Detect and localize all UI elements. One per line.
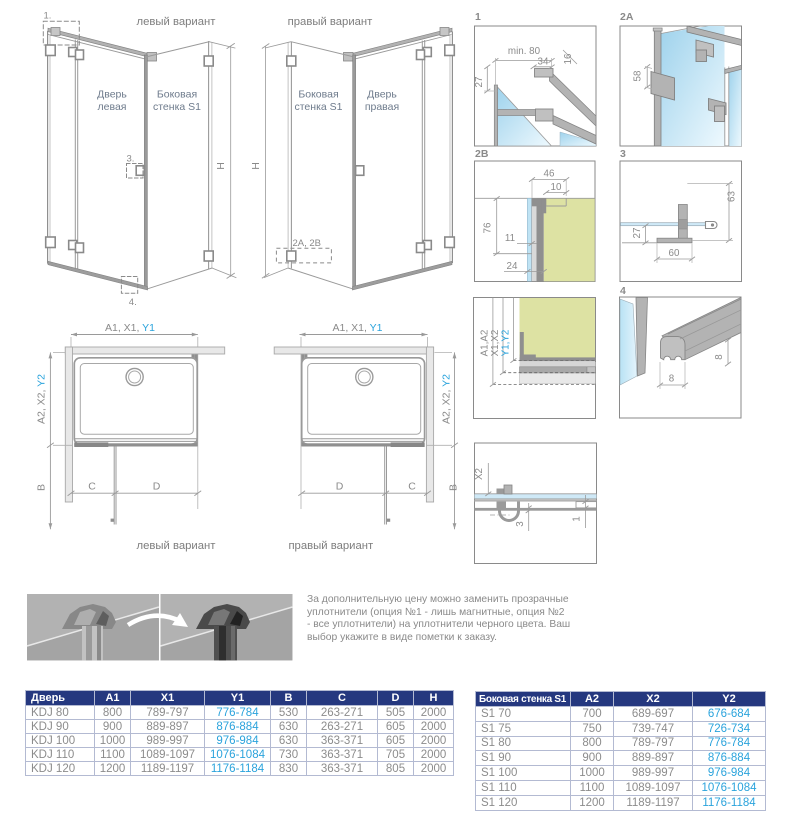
svg-text:2А, 2В: 2А, 2В (293, 238, 322, 249)
svg-text:A2, X2, Y2: A2, X2, Y2 (440, 374, 452, 424)
svg-text:4.: 4. (129, 297, 137, 308)
svg-text:D: D (336, 481, 344, 493)
svg-text:3: 3 (515, 521, 526, 527)
svg-text:8: 8 (669, 374, 675, 385)
svg-text:63: 63 (727, 191, 738, 202)
svg-text:34: 34 (538, 57, 549, 68)
svg-text:min. 80: min. 80 (508, 46, 541, 57)
svg-text:10: 10 (551, 182, 562, 193)
svg-text:27: 27 (632, 228, 643, 239)
svg-text:76: 76 (483, 222, 494, 233)
svg-text:A2, X2, Y2: A2, X2, Y2 (35, 374, 47, 424)
svg-text:H: H (215, 162, 227, 170)
svg-text:A1,A2: A1,A2 (480, 330, 491, 357)
svg-text:B: B (448, 484, 460, 491)
svg-text:X2: X2 (474, 468, 485, 480)
svg-text:1: 1 (475, 11, 481, 23)
svg-text:2B: 2B (475, 148, 489, 160)
svg-text:X1,X2: X1,X2 (490, 330, 501, 357)
svg-text:27: 27 (474, 77, 485, 88)
svg-text:Боковая: Боковая (157, 89, 197, 101)
svg-text:Y1,Y2: Y1,Y2 (501, 330, 512, 357)
svg-text:B: B (35, 484, 47, 491)
svg-text:правая: правая (365, 101, 399, 113)
svg-text:Боковая: Боковая (298, 89, 338, 101)
svg-text:16: 16 (563, 53, 574, 64)
svg-text:стенка S1: стенка S1 (294, 101, 342, 113)
svg-text:D: D (153, 481, 161, 493)
svg-text:C: C (88, 481, 96, 493)
svg-text:1: 1 (572, 516, 583, 521)
svg-text:A1, X1, Y1: A1, X1, Y1 (105, 322, 155, 334)
svg-text:Дверь: Дверь (367, 89, 397, 101)
svg-text:1.: 1. (44, 11, 52, 22)
svg-text:11: 11 (505, 233, 515, 244)
svg-text:3.: 3. (127, 154, 135, 165)
svg-text:60: 60 (669, 248, 680, 259)
svg-text:левый вариант: левый вариант (137, 540, 216, 552)
svg-text:правый вариант: правый вариант (288, 16, 373, 28)
svg-text:правый вариант: правый вариант (288, 540, 373, 552)
svg-text:4: 4 (620, 285, 626, 297)
svg-text:левый вариант: левый вариант (137, 16, 216, 28)
svg-text:левая: левая (98, 101, 127, 113)
svg-text:2A: 2A (620, 11, 634, 23)
svg-text:стенка S1: стенка S1 (153, 101, 201, 113)
svg-text:46: 46 (544, 169, 555, 180)
svg-text:A1, X1, Y1: A1, X1, Y1 (332, 322, 382, 334)
svg-text:58: 58 (633, 70, 644, 81)
svg-text:Дверь: Дверь (97, 89, 127, 101)
svg-text:8: 8 (714, 354, 725, 360)
svg-text:3: 3 (620, 148, 626, 160)
svg-text:H: H (250, 162, 262, 170)
svg-text:C: C (408, 481, 416, 493)
svg-text:24: 24 (507, 261, 518, 272)
